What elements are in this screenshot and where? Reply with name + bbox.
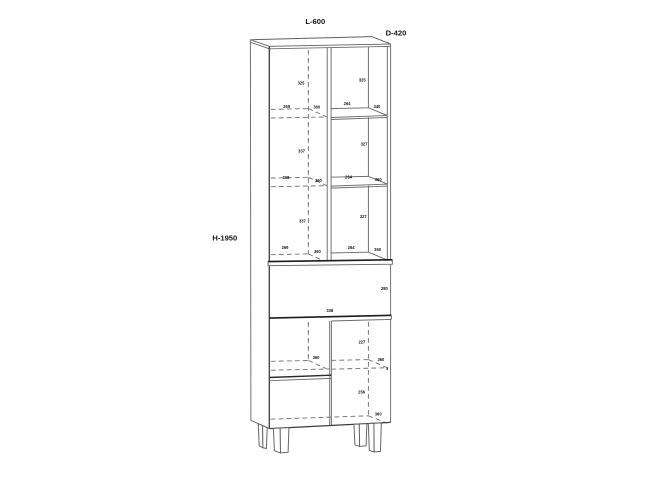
svg-text:325: 325 [359,77,367,82]
svg-text:269: 269 [283,104,291,109]
svg-text:360: 360 [315,178,323,183]
svg-text:256: 256 [358,390,366,395]
svg-text:268: 268 [283,175,291,180]
svg-text:D-420: D-420 [386,28,407,37]
svg-text:360: 360 [375,177,383,182]
svg-text:327: 327 [361,142,369,147]
svg-text:360: 360 [313,355,321,360]
svg-text:280: 280 [381,286,389,291]
svg-text:264: 264 [344,101,352,106]
svg-text:269: 269 [282,245,290,250]
svg-text:264: 264 [348,245,356,250]
svg-text:360: 360 [375,411,383,416]
svg-text:337: 337 [298,149,306,154]
svg-text:264: 264 [345,174,353,179]
svg-text:327: 327 [360,214,368,219]
svg-text:340: 340 [373,104,381,109]
svg-text:360: 360 [313,105,321,110]
svg-text:L-600: L-600 [305,17,325,26]
svg-text:H-1950: H-1950 [212,234,237,243]
svg-text:227: 227 [358,339,366,344]
svg-text:338: 338 [326,308,334,313]
svg-text:360: 360 [377,357,385,362]
svg-text:325: 325 [298,80,306,85]
svg-text:337: 337 [299,219,307,224]
svg-text:360: 360 [314,249,322,254]
svg-text:360: 360 [374,247,382,252]
